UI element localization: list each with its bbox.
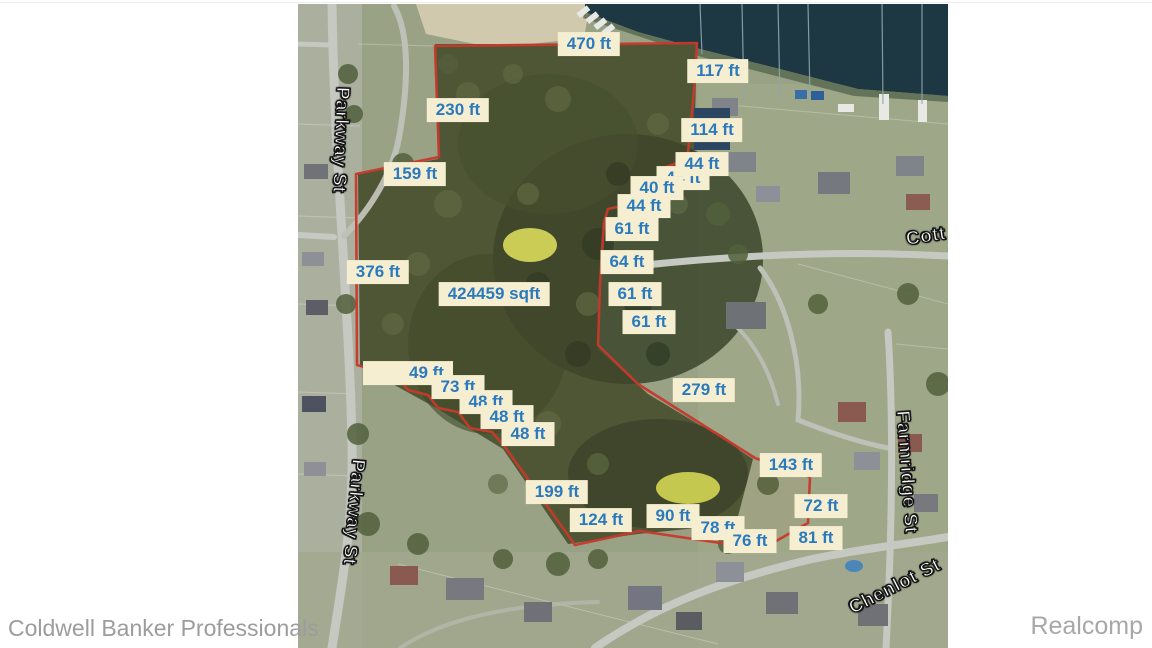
measurement-44ft-c: 44 ft [618,194,671,218]
measurement-124ft: 124 ft [570,508,632,532]
measurement-230ft: 230 ft [427,98,489,122]
measurement-76ft: 76 ft [724,529,777,553]
mls-watermark: Realcomp [1030,612,1143,641]
brokerage-watermark: Coldwell Banker Professionals [8,615,319,642]
measurement-117ft: 117 ft [687,59,748,83]
measurement-376ft: 376 ft [347,260,409,284]
measurement-279ft: 279 ft [673,378,735,402]
measurement-81ft: 81 ft [790,526,843,550]
measurement-61ft-a: 61 ft [606,217,659,241]
measurement-61ft-b: 61 ft [609,282,662,306]
satellite-map[interactable]: 470 ft117 ft230 ft159 ft114 ft44 ft44 ft… [298,4,948,648]
measurement-90ft: 90 ft [647,504,700,528]
parcel-area-label: 424459 sqft [439,282,550,306]
measurement-143ft: 143 ft [760,453,822,477]
measurement-199ft: 199 ft [526,480,588,504]
measurement-72ft: 72 ft [795,494,848,518]
measurement-61ft-c: 61 ft [623,310,676,334]
measurement-114ft: 114 ft [681,118,742,142]
measurement-470ft: 470 ft [558,32,620,56]
page-top-divider [0,2,1152,3]
measurement-44ft-a: 44 ft [676,152,729,176]
measurement-159ft: 159 ft [384,162,446,186]
measurement-48ft-c: 48 ft [502,422,555,446]
street-label-parkway-st-north: Parkway St [327,86,353,193]
measurement-64ft: 64 ft [601,250,654,274]
